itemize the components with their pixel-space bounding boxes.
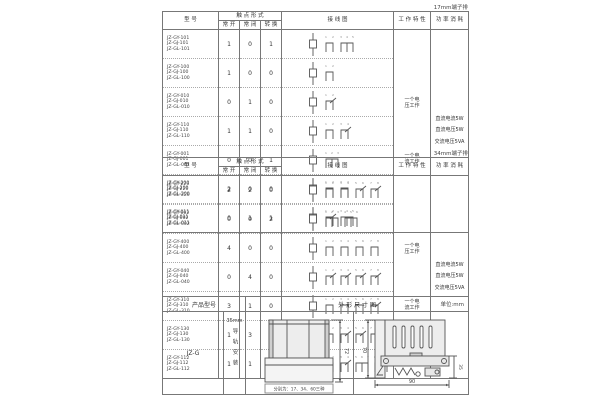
terminal-strip-label-34mm: 34mm端子排 xyxy=(162,149,468,157)
side-view-drawing: 70 90 35 xyxy=(355,312,468,394)
svg-text:8: 8 xyxy=(377,268,379,272)
side-height-dimension-label: 70 xyxy=(361,347,367,353)
mounting-cell: 35mm 导轨安装 xyxy=(224,312,246,395)
model-name: JZ-GL-100 xyxy=(167,76,218,81)
model-name: JZ-GL-400 xyxy=(167,251,218,256)
front-height-dimension-label: 72 xyxy=(343,348,349,354)
model-cell: JZ-GY-100JZ-GJ-100JZ-GL-100 xyxy=(163,59,219,88)
spec-row: JZ-GY-101JZ-GJ-101JZ-GL-10110112345一个电 压… xyxy=(163,30,469,59)
no-count: 1 xyxy=(219,30,240,59)
co-count: 2 xyxy=(261,205,282,234)
header-normally-closed: 常 闭 xyxy=(240,21,261,30)
wiring-diagram-svg: 12345678 xyxy=(304,176,394,204)
svg-text:2: 2 xyxy=(332,122,334,126)
nc-count: 1 xyxy=(240,88,261,117)
svg-text:1: 1 xyxy=(325,93,327,97)
svg-text:7: 7 xyxy=(370,239,372,243)
model-name: JZ-GL-110 xyxy=(167,134,218,139)
header-changeover: 转 换 xyxy=(261,21,282,30)
no-count: 0 xyxy=(219,205,240,234)
wiring-diagram-svg: 12345 xyxy=(304,30,394,58)
wiring-diagram-svg: 12345678 xyxy=(304,234,394,262)
co-count: 1 xyxy=(261,30,282,59)
svg-text:6: 6 xyxy=(362,268,364,272)
no-count: 1 xyxy=(219,117,240,146)
terminal-strip-label-17mm: 17mm端子排 xyxy=(162,3,468,11)
nc-count: 0 xyxy=(240,30,261,59)
no-count: 0 xyxy=(219,263,240,292)
front-caption: 分别为：17、34、60三种 xyxy=(273,386,324,393)
wiring-diagram-cell: 12 xyxy=(282,88,394,117)
dimension-row: JZ-G 35mm 导轨安装 xyxy=(163,312,469,395)
unit-label: 单位:mm xyxy=(440,300,464,308)
header-normally-open: 常 开 xyxy=(219,21,240,30)
svg-text:4: 4 xyxy=(344,210,346,214)
model-cell: JZ-GY-040JZ-GJ-040JZ-GL-040 xyxy=(163,263,219,292)
svg-text:6: 6 xyxy=(362,181,364,185)
rail-mount-label: 导轨安装 xyxy=(231,328,239,370)
wiring-diagram-cell: 12345678 xyxy=(282,263,394,292)
header-normally-closed: 常 闭 xyxy=(240,167,261,176)
wiring-diagram-cell: 12345678 xyxy=(282,234,394,263)
svg-text:2: 2 xyxy=(332,239,334,243)
svg-text:4: 4 xyxy=(347,239,349,243)
catalog-page: 17mm端子排 型 号 触 点 形 式 接 线 图 工 作 特 性 功 率 消 … xyxy=(0,0,600,400)
wiring-diagram-cell: 12345 xyxy=(282,30,394,59)
header-changeover: 转 换 xyxy=(261,167,282,176)
wiring-diagram-svg: 123456 xyxy=(304,205,394,233)
characteristic-voltage: 一个电 压工作 xyxy=(405,97,420,110)
svg-text:1: 1 xyxy=(325,64,327,68)
no-count: 1 xyxy=(219,59,240,88)
no-count: 4 xyxy=(219,234,240,263)
svg-text:2: 2 xyxy=(332,64,334,68)
model-name: JZ-GL-002 xyxy=(167,222,218,227)
power-line: 直流电流5W xyxy=(435,117,463,123)
header-diagram: 接 线 图 xyxy=(282,158,394,176)
wiring-diagram-svg: 12345678 xyxy=(304,263,394,291)
svg-text:1: 1 xyxy=(325,210,327,214)
co-count: 0 xyxy=(261,59,282,88)
wiring-diagram-cell: 12 xyxy=(282,59,394,88)
nc-count: 4 xyxy=(240,263,261,292)
header-normally-open: 常 开 xyxy=(219,167,240,176)
wiring-diagram-svg: 1234 xyxy=(304,117,394,145)
nc-count: 0 xyxy=(240,234,261,263)
model-cell: JZ-GY-002JZ-GJ-002JZ-GL-002 xyxy=(163,205,219,234)
power-line: 交流电压5VA xyxy=(435,140,465,146)
characteristic-voltage: 一个电 压工作 xyxy=(405,243,420,256)
spec-row: JZ-GY-220JZ-GJ-220JZ-GL-22022012345678一个… xyxy=(163,176,469,205)
wiring-diagram-cell: 123456 xyxy=(282,205,394,234)
svg-text:5: 5 xyxy=(355,181,357,185)
model-cell: JZ-GY-110JZ-GJ-110JZ-GL-110 xyxy=(163,117,219,146)
svg-text:1: 1 xyxy=(325,239,327,243)
svg-text:7: 7 xyxy=(370,268,372,272)
svg-text:1: 1 xyxy=(325,122,327,126)
header-characteristic: 工 作 特 性 xyxy=(394,158,431,176)
svg-text:4: 4 xyxy=(347,268,349,272)
header-diagram: 接 线 图 xyxy=(282,12,394,30)
outline-dimension-title: 外 形 尺 寸 图 xyxy=(338,302,376,309)
co-count: 0 xyxy=(261,117,282,146)
header-characteristic: 工 作 特 性 xyxy=(394,12,431,30)
svg-text:8: 8 xyxy=(377,181,379,185)
svg-text:1: 1 xyxy=(325,268,327,272)
nc-count: 1 xyxy=(240,117,261,146)
co-count: 0 xyxy=(261,234,282,263)
nc-count: 2 xyxy=(240,176,261,205)
svg-text:1: 1 xyxy=(325,181,327,185)
power-line: 交流电压5VA xyxy=(435,286,465,292)
model-cell: JZ-GY-101JZ-GJ-101JZ-GL-101 xyxy=(163,30,219,59)
svg-text:2: 2 xyxy=(332,181,334,185)
svg-text:4: 4 xyxy=(347,181,349,185)
header-contact-form: 触 点 形 式 xyxy=(219,158,282,167)
svg-text:3: 3 xyxy=(337,210,339,214)
header-model: 型 号 xyxy=(163,12,219,30)
model-name: JZ-GL-010 xyxy=(167,105,218,110)
svg-text:1: 1 xyxy=(325,35,327,39)
power-line: 直流电压5W xyxy=(435,128,463,134)
wiring-diagram-cell: 12345678 xyxy=(282,176,394,205)
co-count: 0 xyxy=(261,176,282,205)
svg-text:2: 2 xyxy=(332,35,334,39)
model-name: JZ-GL-101 xyxy=(167,47,218,52)
svg-text:3: 3 xyxy=(340,239,342,243)
side-view-cell: 70 90 35 xyxy=(354,312,469,395)
model-cell: JZ-GY-010JZ-GJ-010JZ-GL-010 xyxy=(163,88,219,117)
rail-size-label: 35mm xyxy=(226,318,242,324)
wiring-diagram-svg: 12 xyxy=(304,88,394,116)
power-line: 直流电压5W xyxy=(435,274,463,280)
svg-text:6: 6 xyxy=(356,210,358,214)
wiring-diagram-svg: 12 xyxy=(304,59,394,87)
header-outline-dimension: 外 形 尺 寸 图 单位:mm xyxy=(246,297,469,312)
svg-text:4: 4 xyxy=(346,35,348,39)
svg-text:5: 5 xyxy=(350,210,352,214)
svg-text:2: 2 xyxy=(331,210,333,214)
co-count: 0 xyxy=(261,263,282,292)
header-contact-form: 触 点 形 式 xyxy=(219,12,282,21)
model-cell: JZ-GY-400JZ-GJ-400JZ-GL-400 xyxy=(163,234,219,263)
model-name: JZ-GL-040 xyxy=(167,280,218,285)
svg-text:4: 4 xyxy=(347,122,349,126)
svg-text:3: 3 xyxy=(340,268,342,272)
model-cell: JZ-GY-220JZ-GJ-220JZ-GL-220 xyxy=(163,176,219,205)
front-view-cell: 72 分别为：17、34、60三种 xyxy=(246,312,354,395)
header-product-model: 产品型号 xyxy=(163,297,246,312)
header-power: 功 率 消 耗 xyxy=(431,12,469,30)
svg-text:2: 2 xyxy=(332,268,334,272)
header-power: 功 率 消 耗 xyxy=(431,158,469,176)
front-view-drawing: 72 分别为：17、34、60三种 xyxy=(247,312,353,394)
dimension-table: 产品型号 外 形 尺 寸 图 单位:mm JZ-G 35mm 导轨安装 xyxy=(162,296,469,395)
nc-count: 0 xyxy=(240,59,261,88)
product-model-cell: JZ-G xyxy=(163,312,224,395)
nc-count: 0 xyxy=(240,205,261,234)
svg-text:3: 3 xyxy=(340,181,342,185)
svg-text:7: 7 xyxy=(370,181,372,185)
no-count: 2 xyxy=(219,176,240,205)
svg-text:3: 3 xyxy=(340,122,342,126)
svg-text:5: 5 xyxy=(355,239,357,243)
model-name: JZ-GL-220 xyxy=(167,193,218,198)
header-model: 型 号 xyxy=(163,158,219,176)
co-count: 0 xyxy=(261,88,282,117)
no-count: 0 xyxy=(219,88,240,117)
side-width-dimension-label: 90 xyxy=(408,379,414,385)
svg-text:6: 6 xyxy=(362,239,364,243)
side-rail-dimension-label: 35 xyxy=(457,364,463,370)
power-line: 直流电流5W xyxy=(435,263,463,269)
svg-text:5: 5 xyxy=(352,35,354,39)
svg-text:2: 2 xyxy=(332,93,334,97)
svg-text:3: 3 xyxy=(340,35,342,39)
svg-text:5: 5 xyxy=(355,268,357,272)
wiring-diagram-cell: 1234 xyxy=(282,117,394,146)
svg-text:8: 8 xyxy=(377,239,379,243)
